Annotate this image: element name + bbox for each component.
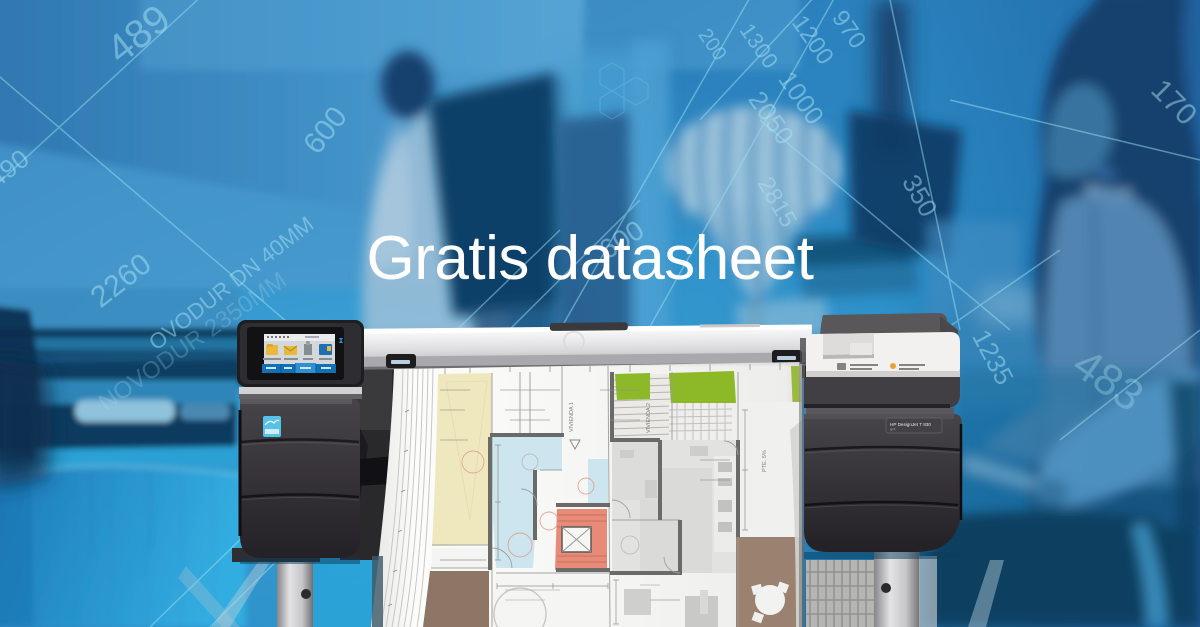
svg-text:VIVIENDA 1: VIVIENDA 1	[569, 402, 575, 432]
svg-text:MFP: MFP	[890, 428, 896, 432]
svg-text:PTE. 5%: PTE. 5%	[762, 450, 768, 472]
svg-text:VIVIENDA 2: VIVIENDA 2	[646, 403, 652, 433]
svg-text:HP DesignJet T 830: HP DesignJet T 830	[890, 422, 931, 427]
svg-text:Gratis datasheet: Gratis datasheet	[367, 224, 814, 293]
